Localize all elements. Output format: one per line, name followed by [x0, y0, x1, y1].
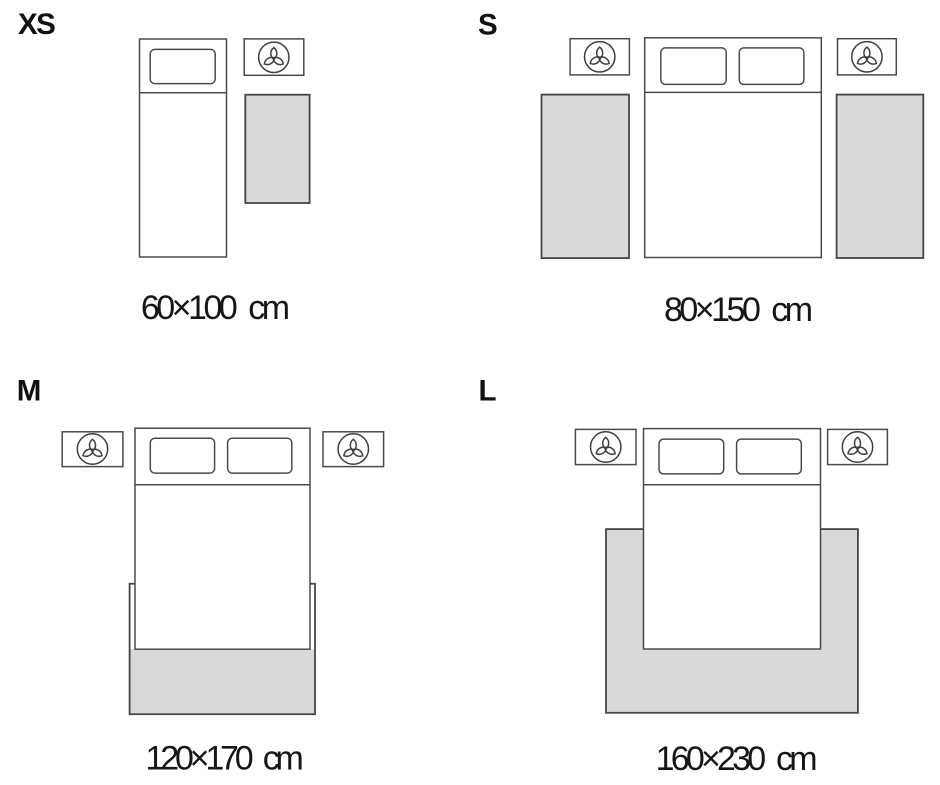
svg-text:M: M — [17, 375, 42, 408]
svg-text:160×230 cm: 160×230 cm — [656, 740, 817, 778]
svg-text:60×100 cm: 60×100 cm — [141, 289, 289, 327]
svg-text:120×170 cm: 120×170 cm — [146, 740, 303, 778]
svg-text:80×150 cm: 80×150 cm — [664, 291, 812, 329]
svg-text:S: S — [478, 9, 498, 42]
svg-text:L: L — [479, 375, 497, 408]
svg-text:XS: XS — [18, 8, 55, 41]
